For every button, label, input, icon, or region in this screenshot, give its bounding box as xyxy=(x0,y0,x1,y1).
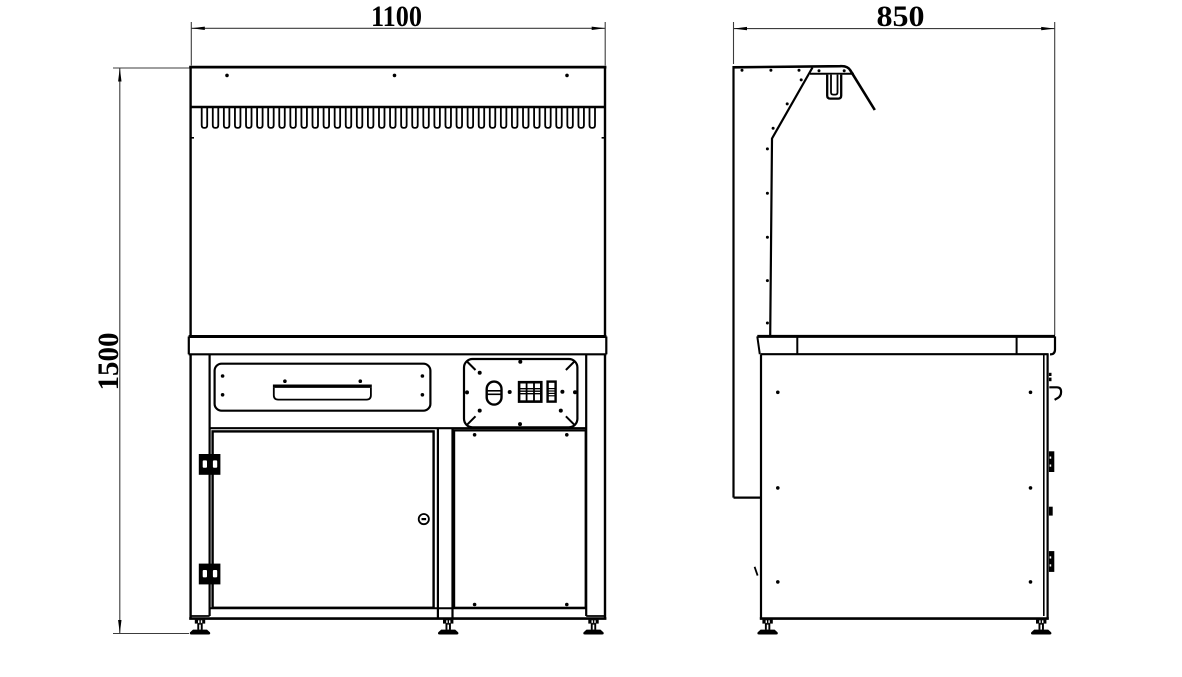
svg-text:1100: 1100 xyxy=(371,0,422,33)
svg-text:850: 850 xyxy=(877,0,925,33)
svg-text:1500: 1500 xyxy=(92,333,125,391)
